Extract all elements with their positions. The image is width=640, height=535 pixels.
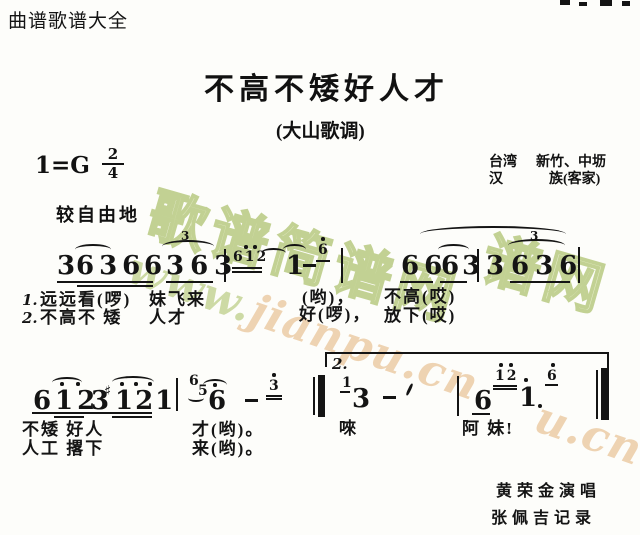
grace-slur <box>188 394 204 402</box>
slur <box>75 244 111 255</box>
note-group: 6 <box>208 388 226 414</box>
meter-numerator: 2 <box>102 147 124 162</box>
cropped-edge-mark <box>600 0 612 6</box>
note-group: 1 <box>286 253 304 279</box>
octave-dot <box>524 378 528 382</box>
lyric-segment: 人才 <box>149 308 187 327</box>
lyric-segment: 好(啰)， <box>299 305 371 324</box>
triplet-number: 3 <box>181 229 189 243</box>
barline <box>578 247 580 283</box>
note-group: 6 <box>474 388 492 414</box>
time-signature: 2 4 <box>102 147 124 181</box>
grace-beam <box>316 260 330 262</box>
verse-number: 2. <box>22 309 38 327</box>
note-group: 3 <box>57 253 75 279</box>
note-group: 6 <box>33 388 51 414</box>
song-title: 不高不矮好人才 <box>204 64 449 108</box>
barline <box>457 376 459 416</box>
lyric-segment: 才(哟)。 <box>192 420 264 439</box>
lyric-segment: 妹飞来 <box>149 290 206 309</box>
slur <box>52 377 82 388</box>
cropped-edge-mark <box>560 0 570 5</box>
augmentation-dot <box>538 404 542 408</box>
grace-beam <box>232 267 262 269</box>
held-note-dash <box>383 396 396 399</box>
octave-dot <box>321 237 325 241</box>
beam <box>472 413 490 415</box>
note-group: 3 <box>486 253 504 279</box>
grace-notes: 6 <box>318 243 328 257</box>
lyric-segment: 放下(哎) <box>384 306 456 325</box>
note-group: 121 <box>115 388 175 414</box>
beam <box>77 285 153 287</box>
fermata-dot <box>213 383 217 387</box>
beam <box>57 281 153 283</box>
grace-notes: 3 <box>269 379 279 393</box>
watermark-url-fragment: u.cn <box>528 392 640 476</box>
barline <box>341 248 343 283</box>
barline <box>176 378 178 411</box>
tie <box>283 244 306 255</box>
note-group: 1 <box>519 385 537 411</box>
cropped-edge-mark <box>622 1 630 6</box>
beam <box>400 281 433 283</box>
credit-transcriber: 张佩吉记录 <box>491 504 596 528</box>
octave-dot <box>272 373 276 377</box>
octave-dot <box>253 245 257 249</box>
barline <box>477 249 479 282</box>
lyric-segment: 来(哟)。 <box>192 439 264 458</box>
note-group: 6 <box>144 253 162 279</box>
key-signature: 1=G <box>35 152 90 179</box>
grace-beam <box>340 391 350 393</box>
sheet-music-page: { "page": { "site_header": "曲谱歌谱大全", "ti… <box>0 0 640 535</box>
volta-bracket-tick <box>607 352 609 369</box>
grace-beam <box>232 271 262 273</box>
barline <box>313 377 315 415</box>
octave-dot <box>499 363 503 367</box>
thick-barline <box>318 375 325 417</box>
verse-number: 1. <box>22 291 38 309</box>
beam <box>510 281 570 283</box>
barline <box>596 370 598 419</box>
grace-beam <box>545 384 558 386</box>
beam <box>166 281 213 283</box>
beam <box>32 412 152 414</box>
octave-dot <box>509 363 513 367</box>
triplet-number: 3 <box>530 229 538 243</box>
note-group: 3 <box>352 386 370 412</box>
grace-beam <box>266 395 282 397</box>
grace-notes: 6 <box>547 369 557 383</box>
slur <box>112 376 154 388</box>
tempo-marking: 较自由地 <box>56 201 140 227</box>
sharp-accidental: ♯ <box>104 384 111 398</box>
slur <box>438 244 469 255</box>
grace-beam <box>493 388 517 390</box>
volta-bracket-line <box>325 352 609 354</box>
barline <box>224 249 226 282</box>
note-group: 636 <box>76 253 145 279</box>
grace-notes: 12 <box>495 369 518 383</box>
song-subtitle: (大山歌调) <box>276 116 365 143</box>
lyric-segment: 阿 妹! <box>462 419 514 438</box>
volta-bracket-tick <box>325 352 327 367</box>
final-thick-barline <box>601 368 609 420</box>
lyric-segment: 不高(哎) <box>384 287 456 306</box>
grace-notes: 1 <box>342 376 352 390</box>
origin-ethnic-detail: 族(客家) <box>549 168 600 188</box>
beam <box>54 416 84 418</box>
octave-dot <box>244 245 248 249</box>
lyric-segment: 远远看(啰) <box>40 290 131 309</box>
origin-ethnic: 汉 <box>489 168 503 188</box>
lyric-segment: 人工 撂下 <box>22 439 104 458</box>
held-note-dash <box>303 264 316 267</box>
beam <box>112 416 152 418</box>
volta-number: 2. <box>332 355 348 373</box>
meter-denominator: 4 <box>102 166 124 181</box>
held-note-dash <box>245 399 258 402</box>
lyric-segment: 唻 <box>339 419 358 438</box>
note-group: 636 <box>511 253 583 279</box>
note-group: 363 <box>166 253 238 279</box>
site-header: 曲谱歌谱大全 <box>8 6 128 33</box>
lyric-segment: 不高不 矮 <box>40 308 122 327</box>
cropped-edge-mark <box>579 2 587 6</box>
grace-beam <box>266 398 282 400</box>
credit-singer: 黄荣金演唱 <box>496 477 601 501</box>
beam <box>440 281 467 283</box>
lyric-segment: 不矮 好人 <box>22 420 104 439</box>
grace-beam <box>493 385 517 387</box>
octave-dot <box>551 363 555 367</box>
